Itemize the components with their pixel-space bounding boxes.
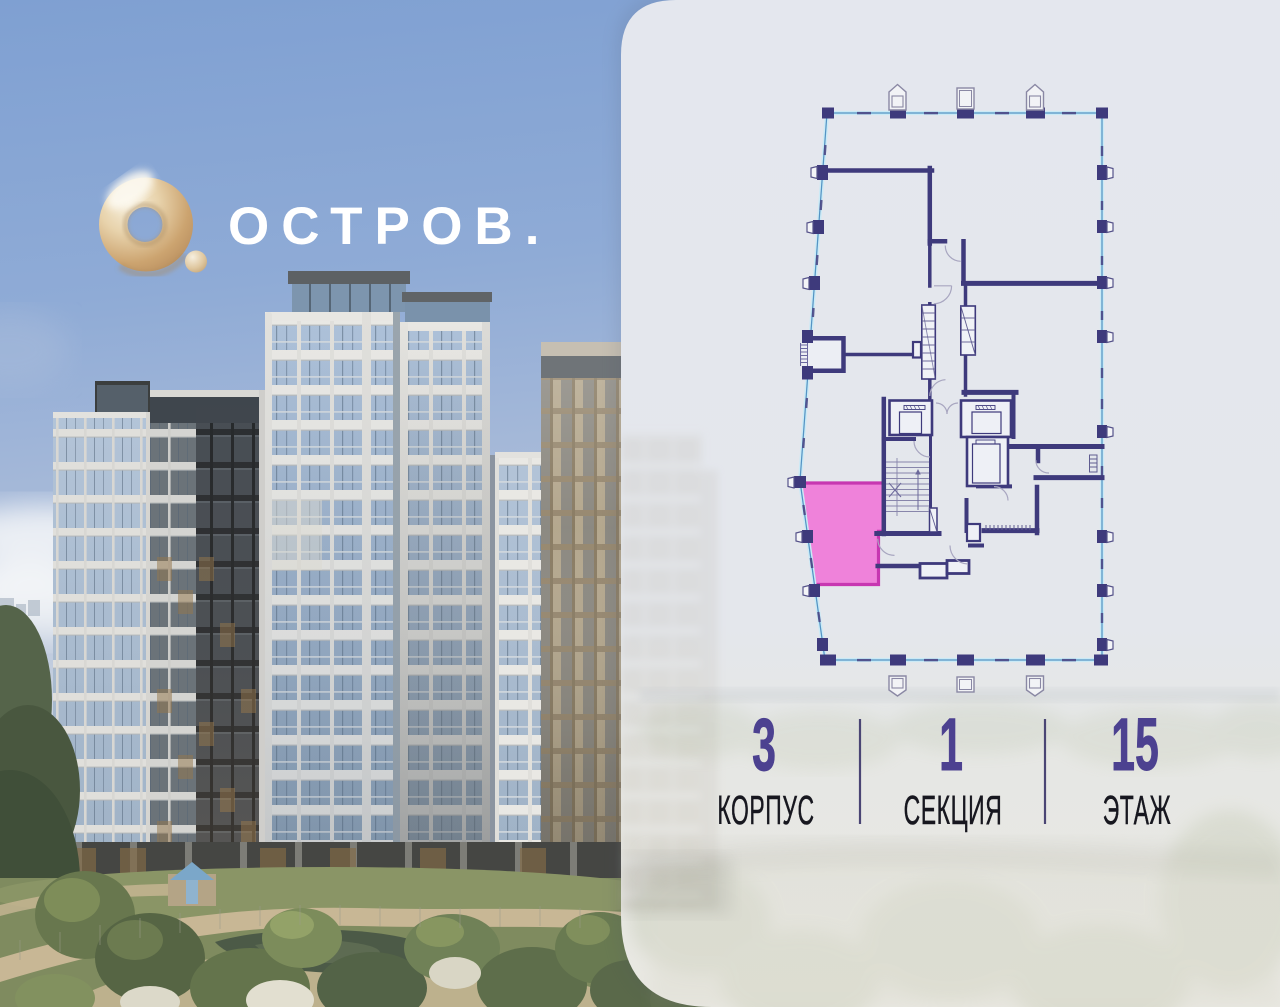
svg-text:15: 15 (1111, 703, 1159, 786)
svg-text:СЕКЦИЯ: СЕКЦИЯ (904, 788, 1003, 834)
svg-text:1: 1 (939, 703, 963, 786)
svg-text:ЭТАЖ: ЭТАЖ (1103, 788, 1172, 834)
svg-text:КОРПУС: КОРПУС (717, 788, 814, 834)
svg-text:ОСТРОВ.: ОСТРОВ. (228, 197, 551, 256)
svg-text:3: 3 (752, 703, 776, 786)
